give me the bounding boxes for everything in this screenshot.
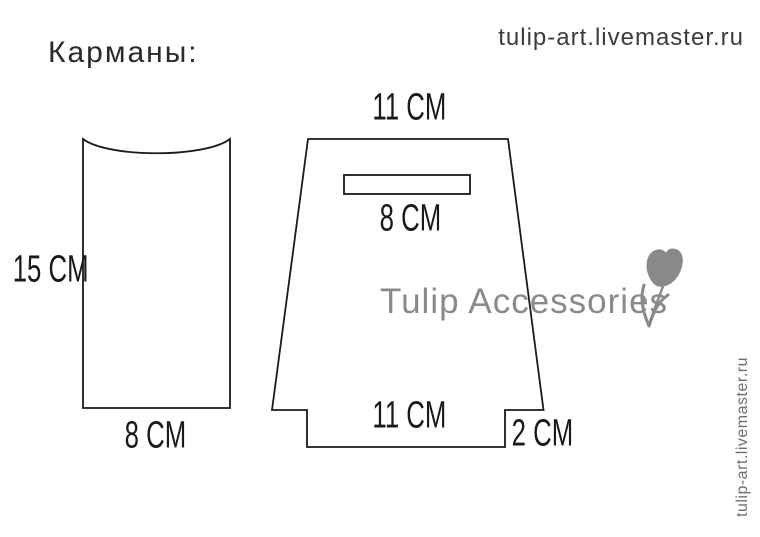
- pattern-diagram: [0, 0, 760, 537]
- dim-label: 15 CM: [13, 247, 89, 291]
- dim-left-piece-height: 15 CM: [2, 250, 92, 288]
- site-url-side: tulip-art.livemaster.ru: [734, 357, 752, 517]
- dim-right-piece-bottom-width: 11 CM: [362, 396, 452, 434]
- welt-slot: [344, 175, 470, 194]
- dim-label: 11 CM: [372, 85, 446, 129]
- tulip-bloom: [647, 249, 683, 287]
- dim-label: 11 CM: [372, 393, 446, 437]
- dim-label: 8 CM: [379, 196, 440, 240]
- dim-label: 2 CM: [511, 411, 572, 455]
- tulip-leaf-left: [642, 285, 649, 326]
- dim-label: 8 CM: [124, 413, 185, 457]
- tulip-icon: [642, 249, 683, 327]
- dim-left-piece-width: 8 CM: [110, 416, 200, 454]
- left-pocket-outline: [83, 139, 230, 408]
- dim-welt-slot-width: 8 CM: [365, 199, 455, 237]
- pattern-sheet: Карманы: tulip-art.livemaster.ru Tulip A…: [0, 0, 760, 537]
- dim-right-piece-top-width: 11 CM: [362, 88, 452, 126]
- dim-step-height: 2 CM: [497, 414, 587, 452]
